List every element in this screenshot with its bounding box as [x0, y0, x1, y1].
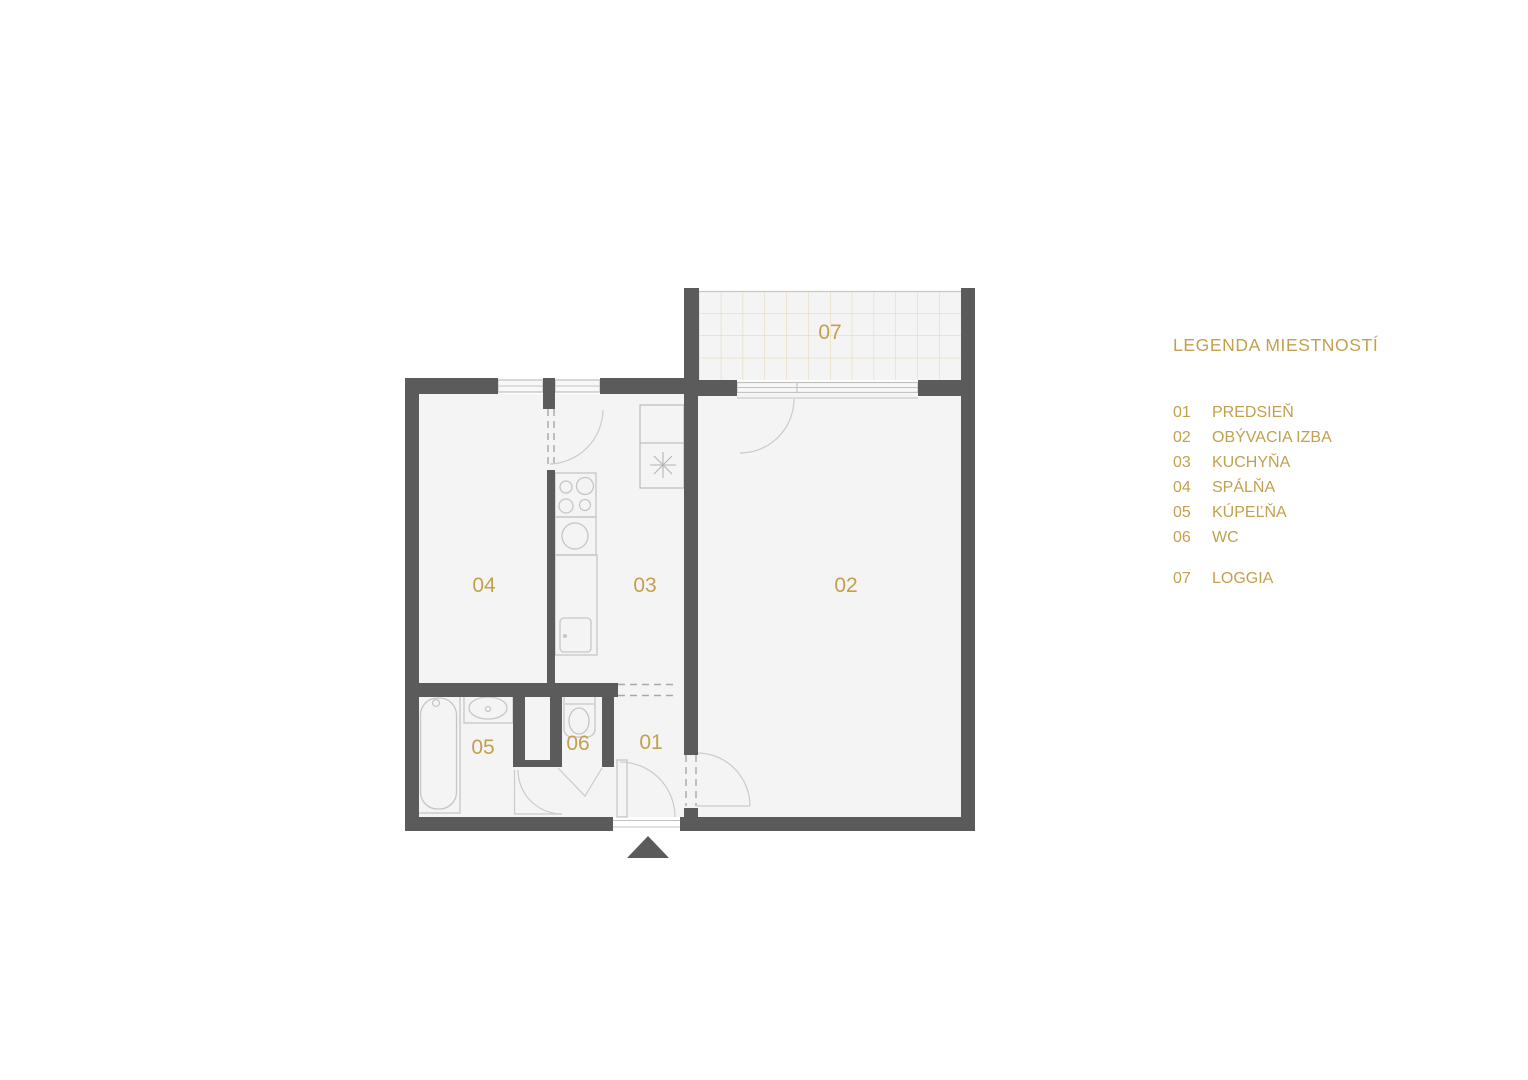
room-label-05: 05: [471, 736, 494, 759]
wall-top-c: [688, 380, 737, 396]
wall-hall-livingroom-stub: [684, 808, 698, 831]
legend-title: LEGENDA MIESTNOSTÍ: [1173, 335, 1378, 356]
wall-bottom-right: [680, 817, 975, 831]
legend-item-02: 02OBÝVACIA IZBA: [1173, 429, 1332, 447]
legend-item-name: KÚPEĽŇA: [1212, 504, 1287, 521]
room-label-02: 02: [834, 574, 857, 597]
legend-item-number: 01: [1173, 404, 1212, 422]
wall-kitchen-livingroom: [684, 394, 698, 755]
legend-item-name: LOGGIA: [1212, 570, 1273, 587]
legend-item-name: PREDSIEŇ: [1212, 404, 1294, 421]
room-label-03: 03: [633, 574, 656, 597]
entrance-arrow-icon: [627, 836, 669, 858]
wall-bedroom-kitchen: [547, 470, 555, 683]
wall-shaft-bottom: [513, 760, 562, 767]
wall-bath-band: [405, 683, 618, 697]
legend-item-06: 06WC: [1173, 529, 1239, 547]
legend-item-name: OBÝVACIA IZBA: [1212, 429, 1332, 446]
wall-top-b: [600, 378, 688, 394]
legend-item-number: 02: [1173, 429, 1212, 447]
wall-top-d: [918, 380, 975, 396]
legend-item-01: 01PREDSIEŇ: [1173, 404, 1294, 422]
wall-shaft-wc: [550, 697, 562, 765]
wall-bottom-left: [405, 817, 613, 831]
wall-bath-shaft: [513, 697, 525, 765]
kitchen-window-icon: [555, 380, 600, 392]
floor-plan: 01 02 03 04 05 06 07: [0, 0, 1528, 1080]
room-label-01: 01: [639, 731, 662, 754]
wall-right: [961, 378, 975, 831]
wall-top-a: [405, 378, 498, 394]
legend-item-number: 04: [1173, 479, 1212, 497]
legend-item-name: KUCHYŇA: [1212, 454, 1290, 471]
wall-loggia-left: [684, 288, 699, 396]
legend-item-07: 07LOGGIA: [1173, 570, 1273, 588]
legend-item-name: SPÁLŇA: [1212, 479, 1275, 496]
legend-item-name: WC: [1212, 529, 1239, 546]
legend-item-number: 05: [1173, 504, 1212, 522]
wall-left: [405, 378, 419, 831]
room-label-07: 07: [818, 321, 841, 344]
room-label-06: 06: [566, 732, 589, 755]
legend-item-number: 03: [1173, 454, 1212, 472]
room-label-04: 04: [472, 574, 496, 597]
wall-wc-hall: [602, 697, 614, 767]
legend-item-03: 03KUCHYŇA: [1173, 454, 1290, 472]
legend-item-number: 07: [1173, 570, 1212, 588]
wall-loggia-right: [961, 288, 975, 380]
wall-window-pier: [543, 378, 555, 409]
legend-item-number: 06: [1173, 529, 1212, 547]
bedroom-window-icon: [498, 380, 543, 392]
legend-item-04: 04SPÁLŇA: [1173, 479, 1275, 497]
legend-item-05: 05KÚPEĽŇA: [1173, 504, 1287, 522]
